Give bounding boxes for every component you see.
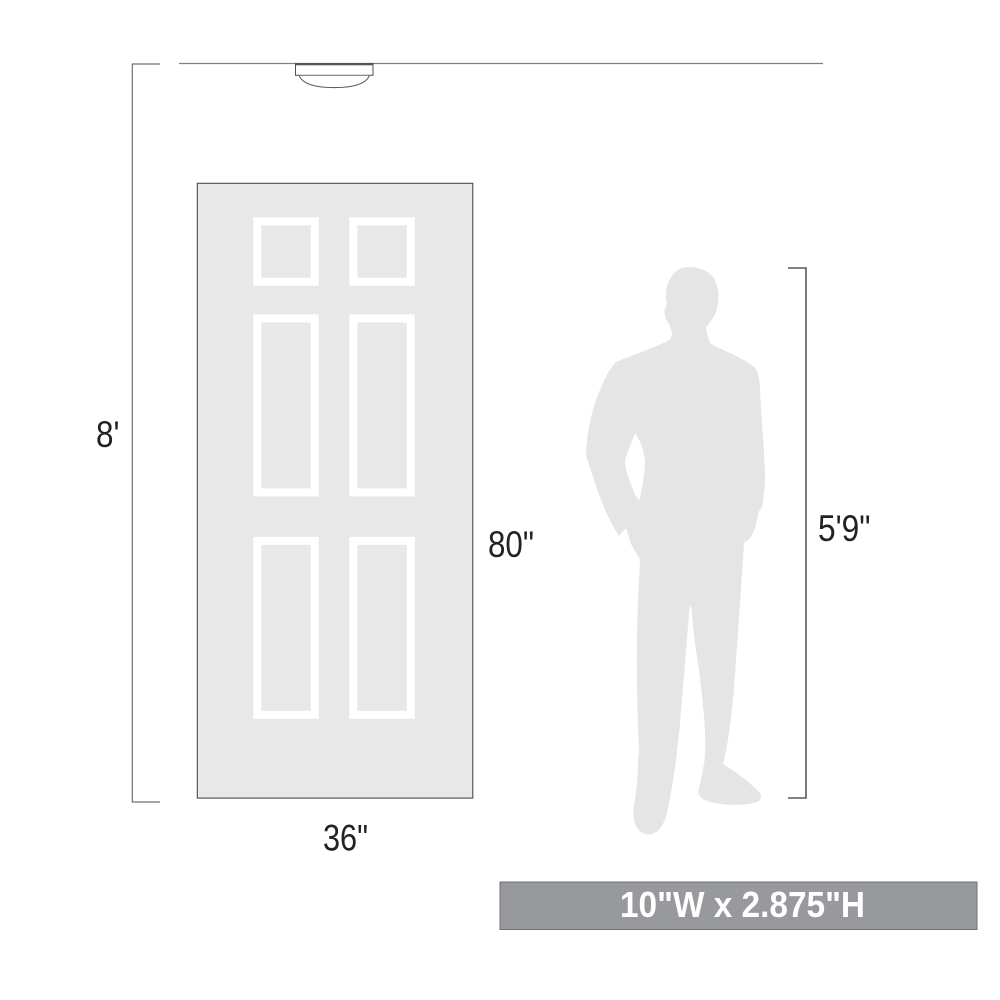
svg-text:5'9": 5'9" — [818, 508, 871, 549]
svg-text:10"W x 2.875"H: 10"W x 2.875"H — [620, 884, 865, 925]
svg-text:36": 36" — [323, 818, 368, 859]
svg-text:8': 8' — [96, 414, 120, 455]
svg-text:80": 80" — [488, 524, 534, 565]
